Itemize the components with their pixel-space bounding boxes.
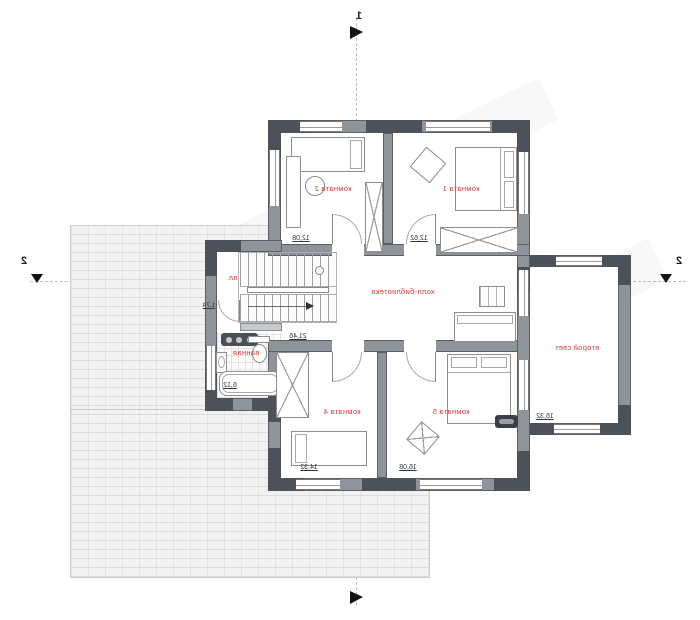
window (206, 346, 216, 390)
room-label: второй свет (548, 343, 606, 352)
glazed-opening (518, 270, 529, 316)
axis-arrow-right-icon (660, 274, 672, 283)
wardrobe (276, 352, 309, 418)
wall-unit-pill-icon (499, 419, 514, 424)
window (554, 424, 600, 434)
corner-block (268, 448, 281, 491)
room-area: 14,32 (294, 464, 324, 471)
room-area: 16,08 (393, 464, 423, 471)
glazed-opening (518, 360, 529, 410)
door-opening (404, 244, 436, 256)
room-label: ванная (226, 348, 266, 357)
stair-landing-label: пл. (222, 275, 242, 282)
window (426, 121, 490, 132)
corner-block (600, 423, 631, 435)
bookshelf (479, 286, 505, 307)
wardrobe (365, 182, 383, 252)
pillow (295, 434, 307, 463)
corner-block (530, 255, 556, 267)
axis-arrow-left-icon (31, 274, 43, 283)
room-area: 12,62 (404, 235, 434, 242)
corner-block (517, 451, 530, 491)
room-label: комната 4 (312, 407, 372, 416)
pillow (504, 151, 514, 178)
room-label: комната 5 (421, 407, 481, 416)
corner-block (205, 398, 233, 411)
corner-block (205, 240, 217, 276)
pillow (350, 140, 362, 169)
sink-basin (218, 356, 225, 368)
room-area: 6,12 (217, 382, 243, 389)
partition-upper-rooms (383, 133, 393, 244)
toilet-tank (248, 336, 270, 343)
room-area: 12,08 (286, 235, 316, 242)
door-opening (332, 340, 364, 352)
room-label: комната 1 (431, 184, 491, 193)
room-label: холл-библиотека (366, 287, 440, 296)
section-number-top: 1 (352, 10, 366, 22)
axis-number-left: 2 (17, 255, 31, 267)
door-opening (404, 340, 436, 352)
bed-head-line (500, 148, 501, 210)
window (296, 479, 340, 490)
door-opening (218, 323, 238, 331)
floor-plan: 1 2 2 (0, 0, 700, 620)
wardrobe (440, 227, 518, 253)
wall-unit-badge (495, 415, 518, 428)
stair-direction-line (248, 306, 308, 307)
washer-knob-icon (236, 337, 242, 343)
pillow (451, 357, 477, 368)
pillow (481, 357, 507, 368)
pillow (504, 181, 514, 208)
bed-head-line (448, 372, 510, 373)
stair-handrail (247, 287, 329, 293)
dimension-label: 1,74 (198, 302, 220, 309)
stair-flight-lower (240, 294, 336, 322)
room-label: комната 2 (303, 184, 363, 193)
window (518, 152, 529, 214)
room-area: 21,46 (283, 333, 313, 340)
stair-newel-circle (315, 266, 324, 275)
partition-bath (240, 323, 282, 331)
stair-arrow-icon (306, 302, 314, 310)
window (420, 479, 482, 490)
sofa-back-cushion (457, 315, 513, 324)
desk (286, 156, 301, 228)
pier-block (362, 478, 416, 491)
axis-number-right: 2 (672, 255, 686, 267)
room-area: 16,32 (530, 413, 560, 420)
corner-block (618, 255, 631, 285)
partition-lower-rooms (377, 352, 387, 478)
pier-block (366, 120, 422, 133)
section-arrow-top-icon (350, 26, 363, 39)
section-arrow-bottom-icon (350, 591, 363, 604)
window (556, 256, 602, 266)
washer-knob-icon (226, 337, 232, 343)
corner-block (530, 423, 554, 435)
window (269, 150, 280, 206)
window (300, 121, 342, 132)
